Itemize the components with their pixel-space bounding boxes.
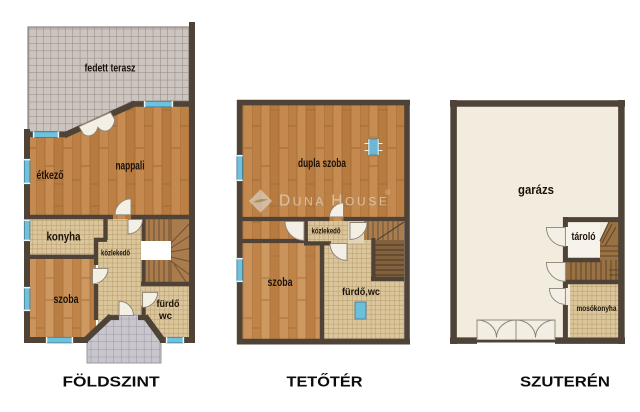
svg-text:®: ® (385, 189, 391, 197)
svg-text:közlekedő: közlekedő (101, 248, 130, 258)
svg-text:nappali: nappali (116, 159, 145, 173)
svg-text:konyha: konyha (47, 230, 81, 244)
svg-text:étkező: étkező (37, 170, 64, 182)
svg-text:TETŐTÉR: TETŐTÉR (287, 373, 363, 391)
svg-text:FÖLDSZINT: FÖLDSZINT (63, 374, 160, 391)
svg-text:fürdő: fürdő (157, 298, 180, 310)
svg-text:wc: wc (158, 310, 172, 322)
svg-text:közlekedő: közlekedő (312, 226, 341, 236)
svg-text:fedett terasz: fedett terasz (85, 63, 136, 75)
svg-text:fürdő,wc: fürdő,wc (342, 286, 380, 298)
svg-text:SZUTERÉN: SZUTERÉN (520, 374, 610, 391)
svg-text:szoba: szoba (54, 292, 79, 306)
svg-text:szoba: szoba (268, 275, 293, 289)
svg-text:garázs: garázs (518, 182, 554, 197)
svg-text:tároló: tároló (572, 231, 596, 243)
svg-text:mosókonyha: mosókonyha (577, 303, 617, 313)
svg-text:DUNA HOUSE: DUNA HOUSE (279, 193, 389, 210)
svg-text:dupla szoba: dupla szoba (298, 156, 346, 170)
